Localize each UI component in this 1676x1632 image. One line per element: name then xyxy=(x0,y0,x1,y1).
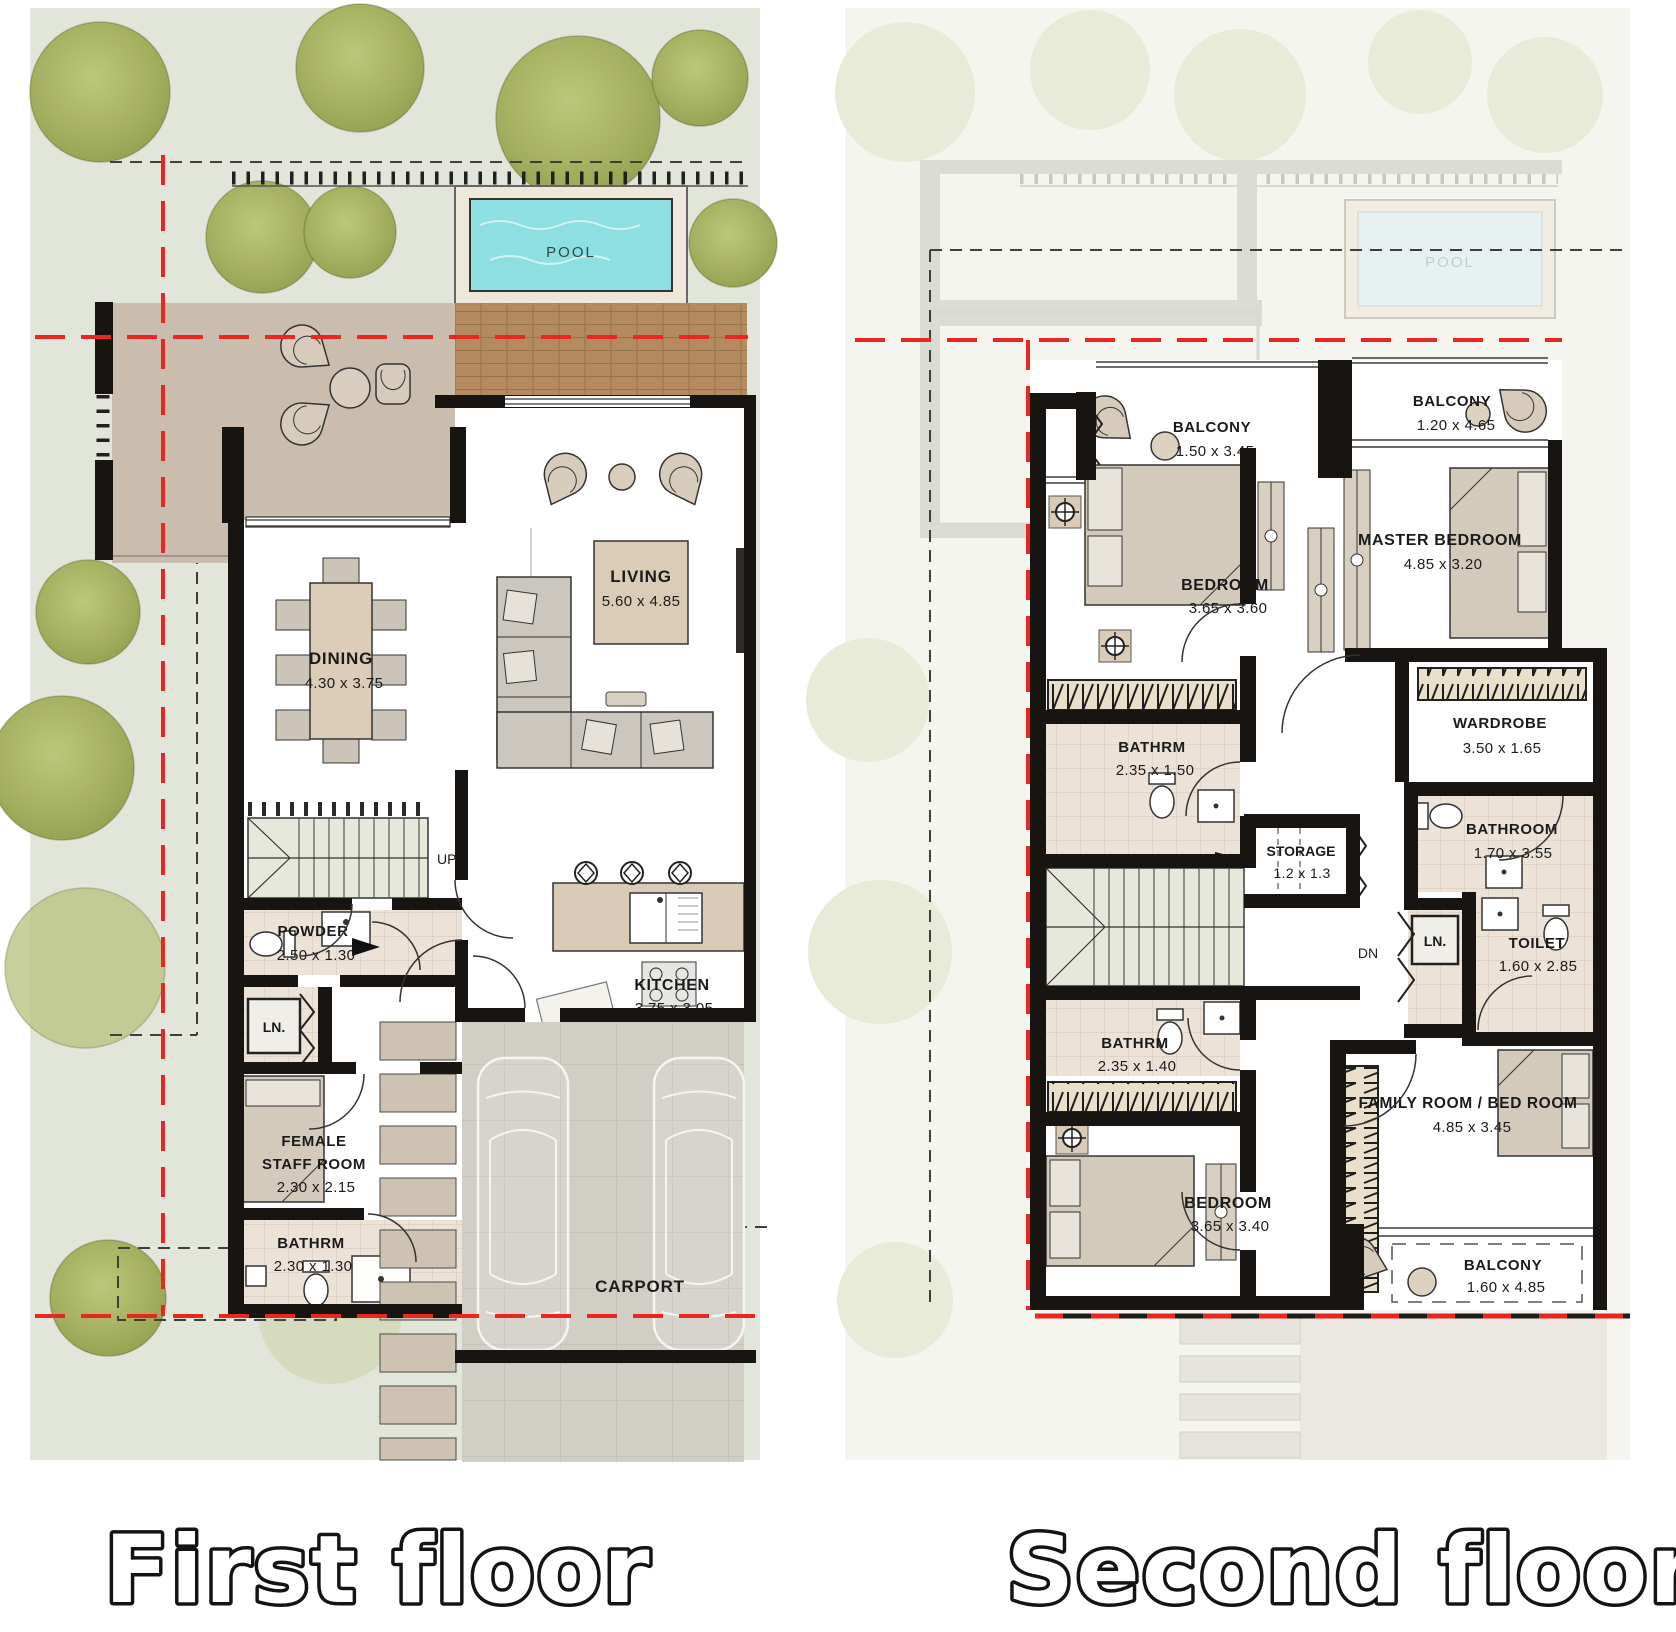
bathroom-2: BATHRM 2.35 x 1.40 xyxy=(1046,1000,1240,1112)
second-floor-plan: POOL BALCONY 1.50 x 3.45 xyxy=(806,8,1630,1460)
driveway-steps xyxy=(380,1022,456,1460)
staff-bath-dim: 2.30 x 1.30 xyxy=(274,1258,353,1275)
first-floor-plan: POOL xyxy=(0,4,777,1462)
dining-dim: 4.30 x 3.75 xyxy=(305,675,384,692)
linen2-label: LN. xyxy=(1424,933,1447,949)
bathrm2-label: BATHRM xyxy=(1101,1035,1168,1052)
second-floor-title: Second floor xyxy=(1006,1516,1676,1625)
stairs-dn-label: DN xyxy=(1358,945,1378,961)
storage-label: STORAGE xyxy=(1267,843,1336,859)
living-label-card: LIVING 5.60 x 4.85 xyxy=(594,541,688,644)
powder-room: POWDER 2.50 x 1.30 xyxy=(244,910,462,975)
staff-dim: 2.30 x 2.15 xyxy=(277,1179,356,1196)
toilet-dim: 1.60 x 2.85 xyxy=(1499,958,1578,975)
storage-dim: 1.2 x 1.3 xyxy=(1273,865,1330,881)
tv-icon xyxy=(736,548,744,653)
wood-deck-texture xyxy=(435,303,747,395)
carport-label: CARPORT xyxy=(595,1277,685,1296)
family-dim: 4.85 x 3.45 xyxy=(1433,1119,1512,1136)
car-icon xyxy=(478,1058,568,1350)
wardrobe-label: WARDROBE xyxy=(1453,715,1547,732)
sink-icon xyxy=(630,893,702,943)
staff-label-2: STAFF ROOM xyxy=(262,1156,366,1173)
bed-icon xyxy=(1046,1156,1194,1266)
stairs-up-label: UP xyxy=(437,851,456,867)
bedroom2-dim: 3.65 x 3.40 xyxy=(1191,1218,1270,1235)
carport: CARPORT xyxy=(380,1022,744,1462)
car-icon xyxy=(654,1058,744,1350)
bathroom-label: BATHROOM xyxy=(1466,821,1558,838)
bathroom-1: BATHRM 2.35 x 1.50 xyxy=(1046,722,1240,854)
pool-label: POOL xyxy=(546,244,596,261)
staircase-up: UP xyxy=(248,809,456,898)
linen-label: LN. xyxy=(263,1019,286,1035)
bathroom-dim: 1.70 x 3.55 xyxy=(1474,845,1553,862)
ghost-pool: POOL xyxy=(1345,200,1555,318)
dining-label: DINING xyxy=(309,649,373,668)
living-label: LIVING xyxy=(610,567,671,586)
powder-dim: 2.50 x 1.30 xyxy=(277,947,356,964)
balcony2-dim: 1.20 x 4.65 xyxy=(1417,417,1496,434)
living-dim: 5.60 x 4.85 xyxy=(602,593,681,610)
bathrm1-label: BATHRM xyxy=(1118,739,1185,756)
family-label: FAMILY ROOM / BED ROOM xyxy=(1358,1095,1577,1112)
ceiling-symbol-icon xyxy=(1099,630,1131,662)
wardrobe-dim: 3.50 x 1.65 xyxy=(1463,740,1542,757)
balcony3-dim: 1.60 x 4.85 xyxy=(1467,1279,1546,1296)
staff-bath-label: BATHRM xyxy=(277,1235,344,1252)
living-window xyxy=(505,396,690,407)
ceiling-symbol-icon xyxy=(1056,1122,1088,1154)
bed-icon xyxy=(1450,468,1550,638)
bedroom2-label: BEDROOM xyxy=(1184,1195,1272,1212)
bathrm1-dim: 2.35 x 1.50 xyxy=(1116,762,1195,779)
master-label: MASTER BEDROOM xyxy=(1358,532,1522,549)
staff-label-1: FEMALE xyxy=(281,1133,346,1150)
toilet-label: TOILET xyxy=(1509,935,1566,952)
pool: POOL xyxy=(455,186,687,304)
linen-closet: LN. xyxy=(244,987,320,1066)
first-floor-title: First floor xyxy=(104,1516,651,1625)
balcony1-label: BALCONY xyxy=(1173,419,1251,436)
ghost-pool-label: POOL xyxy=(1425,254,1475,271)
powder-label: POWDER xyxy=(277,923,348,940)
master-bathroom: BATHROOM 1.70 x 3.55 xyxy=(1417,796,1593,892)
kitchen-label: KITCHEN xyxy=(634,977,709,994)
toilet-room: TOILET 1.60 x 2.85 xyxy=(1476,892,1593,1032)
ceiling-symbol-icon xyxy=(1049,496,1081,528)
bathrm2-dim: 2.35 x 1.40 xyxy=(1098,1058,1177,1075)
balcony3-label: BALCONY xyxy=(1464,1257,1542,1274)
balcony2-label: BALCONY xyxy=(1413,393,1491,410)
counter-stool-icons xyxy=(575,862,691,884)
floor-plans-canvas: POOL xyxy=(0,0,1676,1632)
master-dim: 4.85 x 3.20 xyxy=(1404,556,1483,573)
